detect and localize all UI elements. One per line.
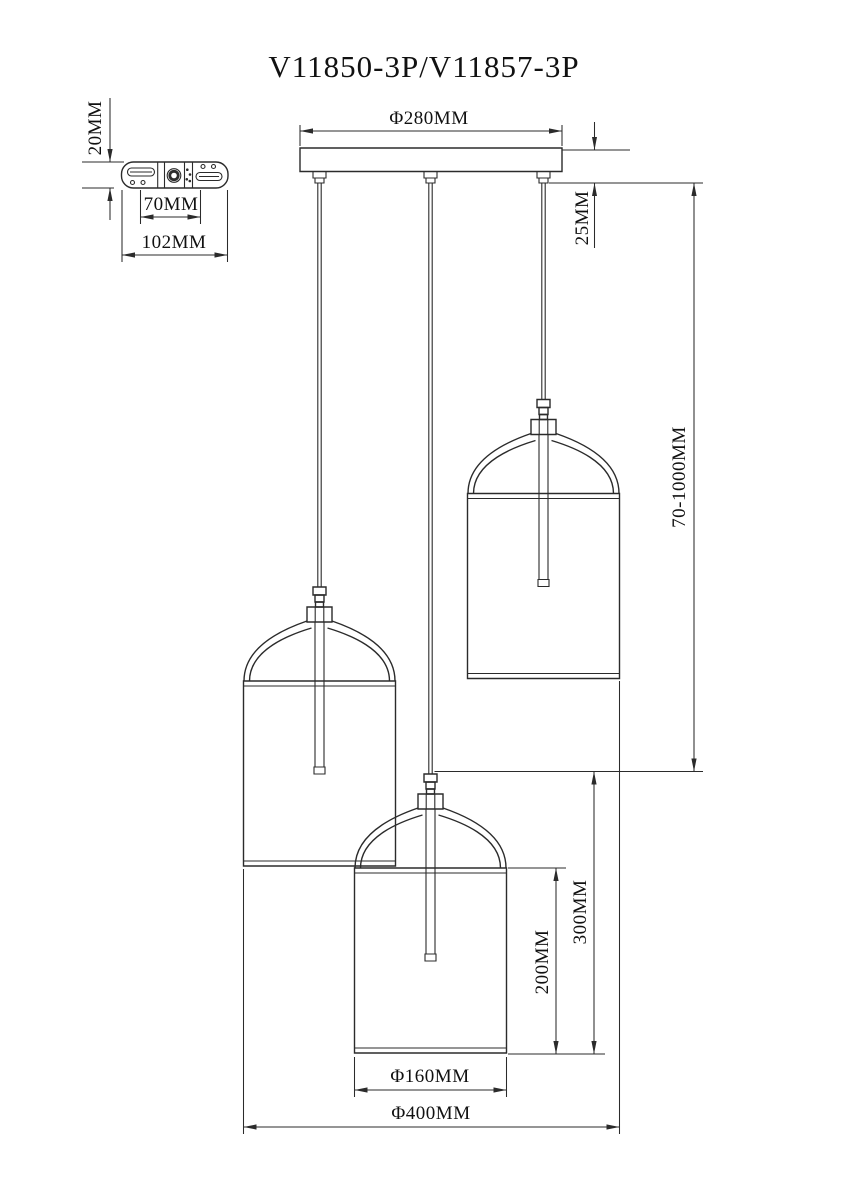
bracket-center-hole xyxy=(167,169,181,183)
drawing-title: V11850-3P/V11857-3P xyxy=(268,49,579,85)
pendant-center xyxy=(355,774,507,1053)
socket-nut xyxy=(531,420,556,435)
socket-nut xyxy=(307,607,332,622)
technical-drawing xyxy=(0,0,848,1200)
suspension-range-label: 70-1000MM xyxy=(669,426,691,528)
height-dimensions xyxy=(435,183,704,1054)
ceiling-canopy xyxy=(300,148,562,183)
fixture-diameter-label: Φ400MM xyxy=(391,1103,470,1125)
pendant-right xyxy=(468,400,620,679)
canopy-cord-grips xyxy=(313,172,550,184)
bracket-hole-spacing-label: 70MM xyxy=(144,194,199,216)
bracket-width-label: 102MM xyxy=(142,232,207,254)
lamp-socket-tube xyxy=(314,767,325,774)
drawing-sheet: V11850-3P/V11857-3P 20MM 70MM 102MM Φ280… xyxy=(0,0,848,1200)
canopy-plate xyxy=(300,148,562,172)
canopy-diameter-label: Φ280MM xyxy=(389,108,468,130)
bracket-height-label: 20MM xyxy=(85,101,107,156)
lamp-socket-tube xyxy=(425,954,436,961)
shade-diameter-label: Φ160MM xyxy=(390,1066,469,1088)
shade-stagger-label: 300MM xyxy=(570,880,592,945)
pendant-left xyxy=(244,587,396,866)
canopy-dimensions xyxy=(300,122,703,248)
lamp-socket-tube xyxy=(538,580,549,587)
socket-nut xyxy=(418,794,443,809)
canopy-height-label: 25MM xyxy=(572,191,594,246)
suspension-cords xyxy=(318,183,545,774)
shade-height-label: 200MM xyxy=(532,930,554,995)
mounting-bracket-view xyxy=(122,162,229,188)
